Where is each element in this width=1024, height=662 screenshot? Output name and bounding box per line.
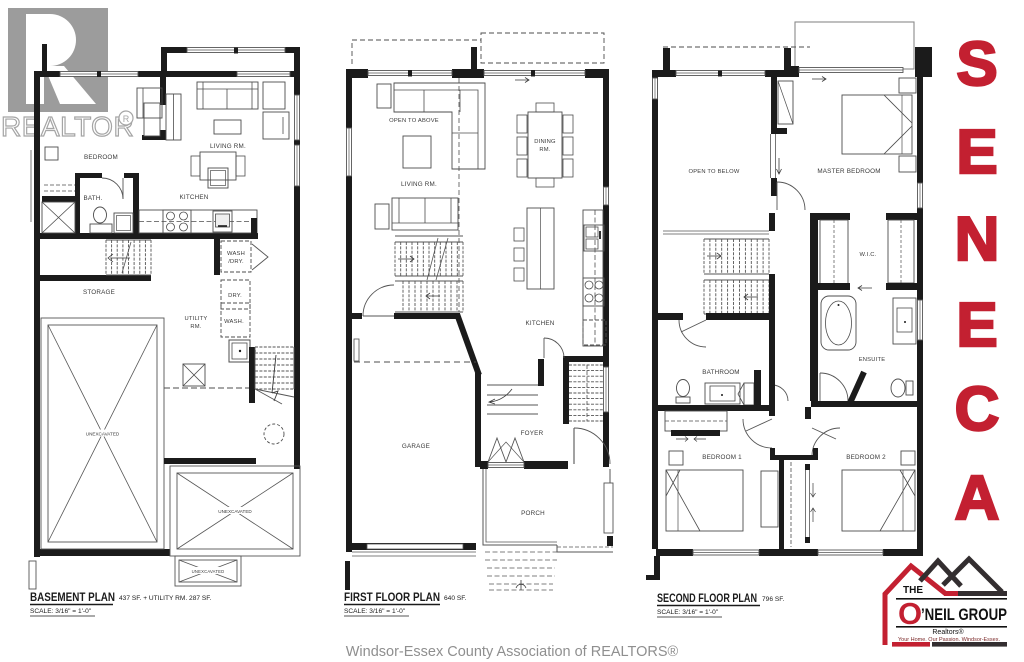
svg-text:N: N: [955, 205, 1000, 274]
svg-text:’NEIL GROUP: ’NEIL GROUP: [921, 606, 1007, 624]
svg-text:OPEN TO ABOVE: OPEN TO ABOVE: [389, 118, 439, 124]
svg-text:640 SF.: 640 SF.: [444, 595, 467, 602]
svg-text:FOYER: FOYER: [521, 430, 544, 437]
svg-text:UTILITY: UTILITY: [185, 316, 208, 322]
svg-text:C: C: [955, 375, 1000, 444]
svg-text:LIVING RM.: LIVING RM.: [401, 181, 437, 188]
svg-text:LIVING RM.: LIVING RM.: [210, 143, 246, 150]
svg-text:BEDROOM: BEDROOM: [84, 154, 118, 161]
svg-text:ENSUITE: ENSUITE: [859, 357, 886, 363]
svg-text:PORCH: PORCH: [521, 510, 545, 517]
svg-text:RM.: RM.: [539, 147, 550, 153]
svg-text:Windsor-Essex County Associati: Windsor-Essex County Association of REAL…: [346, 644, 679, 660]
svg-text:STORAGE: STORAGE: [83, 289, 115, 296]
svg-text:796 SF.: 796 SF.: [762, 596, 785, 603]
svg-text:GARAGE: GARAGE: [402, 443, 430, 450]
svg-text:THE: THE: [903, 585, 923, 596]
svg-text:A: A: [955, 464, 1000, 533]
svg-text:SCALE: 3/16" = 1'-0": SCALE: 3/16" = 1'-0": [30, 608, 92, 615]
svg-text:RM.: RM.: [190, 324, 201, 330]
svg-text:BEDROOM 1: BEDROOM 1: [702, 454, 742, 461]
svg-text:KITCHEN: KITCHEN: [179, 194, 208, 201]
svg-text:SECOND FLOOR PLAN: SECOND FLOOR PLAN: [657, 591, 757, 605]
svg-text:BEDROOM 2: BEDROOM 2: [846, 454, 886, 461]
svg-text:S: S: [956, 30, 997, 99]
svg-text:E: E: [956, 291, 997, 360]
svg-text:REALTOR: REALTOR: [1, 111, 134, 142]
svg-text:O: O: [898, 596, 922, 631]
svg-text:/DRY.: /DRY.: [228, 259, 244, 265]
svg-text:WASH: WASH: [227, 251, 245, 257]
svg-text:MASTER BEDROOM: MASTER BEDROOM: [817, 168, 880, 175]
svg-text:R: R: [123, 114, 130, 124]
svg-text:FIRST FLOOR PLAN: FIRST FLOOR PLAN: [344, 590, 440, 604]
svg-text:SCALE: 3/16" = 1'-0": SCALE: 3/16" = 1'-0": [657, 609, 719, 616]
svg-text:437 SF. + UTILITY RM. 287 SF.: 437 SF. + UTILITY RM. 287 SF.: [119, 595, 212, 602]
svg-text:KITCHEN: KITCHEN: [525, 320, 554, 327]
svg-text:E: E: [956, 118, 997, 187]
svg-text:BATHROOM: BATHROOM: [702, 369, 740, 376]
svg-text:OPEN TO BELOW: OPEN TO BELOW: [688, 169, 739, 175]
svg-text:DINING: DINING: [534, 139, 556, 145]
svg-text:BASEMENT PLAN: BASEMENT PLAN: [30, 590, 115, 604]
svg-text:UNEXCAVATED: UNEXCAVATED: [86, 432, 120, 437]
svg-text:WASH.: WASH.: [224, 319, 244, 325]
svg-text:UNEXCAVATED: UNEXCAVATED: [192, 569, 225, 574]
svg-text:DRY.: DRY.: [228, 293, 242, 299]
svg-text:BATH.: BATH.: [83, 195, 102, 202]
svg-text:SCALE: 3/16" = 1'-0": SCALE: 3/16" = 1'-0": [344, 608, 406, 615]
svg-text:W.I.C.: W.I.C.: [860, 252, 877, 258]
svg-text:Realtors®: Realtors®: [932, 628, 964, 636]
svg-text:UNEXCAVATED: UNEXCAVATED: [218, 509, 252, 514]
